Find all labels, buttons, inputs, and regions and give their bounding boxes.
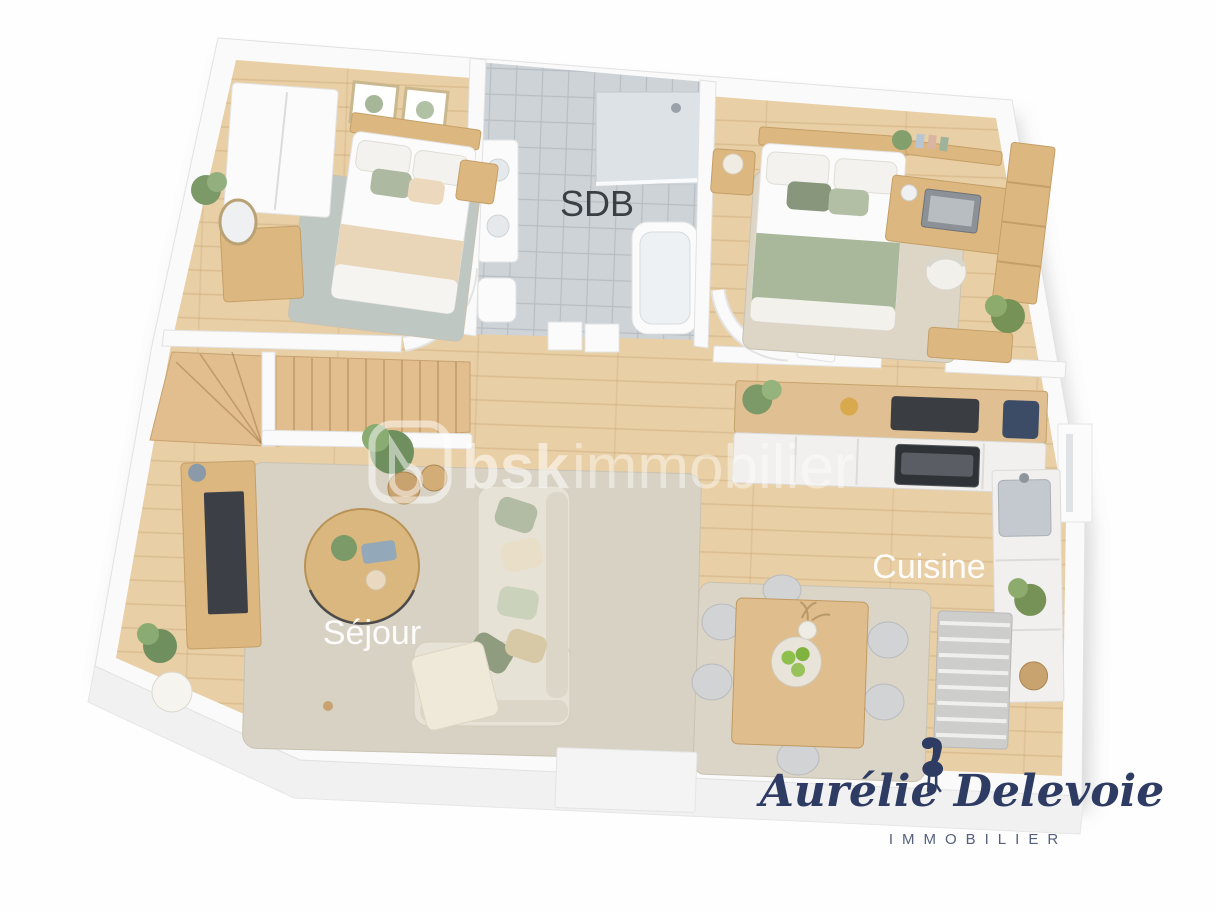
watermark-text-light: immobilier [572, 433, 854, 502]
right-wall-window [1058, 424, 1092, 522]
floorplan-svg: SDB [0, 0, 1216, 912]
plant [137, 623, 159, 645]
table-bowl [366, 570, 386, 590]
bathroom-label: SDB [560, 183, 634, 224]
bathroom-door [585, 324, 619, 352]
tv-console [181, 461, 261, 649]
floorplan-render: SDB [0, 0, 1216, 912]
bathroom: SDB [466, 62, 706, 352]
laptop-screen [928, 195, 975, 226]
agency-subtitle: IMMOBILIER [889, 831, 1067, 848]
plant [985, 295, 1007, 317]
striped-runner [934, 611, 1013, 749]
frame-botanical-art [416, 101, 434, 119]
table-lamp [723, 154, 743, 174]
accent-pillow-sage [369, 168, 412, 199]
shower [596, 92, 700, 184]
window-glass [1066, 434, 1073, 512]
shower-head [671, 103, 681, 113]
runner-base [934, 611, 1013, 749]
entry-step-block [555, 748, 697, 813]
flower-vase [798, 621, 817, 640]
nightstand [455, 160, 498, 205]
sink-basin [487, 215, 509, 237]
oven-window [901, 452, 974, 476]
sofa-back [546, 492, 568, 698]
desk-area [885, 175, 1010, 255]
kitchen-label: Cuisine [872, 548, 985, 586]
frame-botanical-art [365, 95, 383, 113]
dining-chair [868, 622, 908, 658]
bathroom-door [548, 322, 582, 350]
cooktop [890, 396, 979, 433]
table-plant [331, 535, 357, 561]
dining-chair [864, 684, 904, 720]
plant [207, 172, 227, 192]
book [927, 135, 937, 150]
floor-lamp [152, 672, 192, 712]
watermark-text-bold: bsk [462, 433, 569, 502]
mirror [220, 200, 256, 244]
tv-screen [204, 491, 248, 614]
bathtub-basin [640, 232, 690, 324]
toilet [478, 278, 516, 322]
coffee-machine [1002, 400, 1039, 439]
accent-pillow-sage [786, 181, 832, 212]
staircase [150, 352, 472, 449]
book [915, 134, 925, 149]
decor-basket [323, 701, 333, 711]
wicker-basket [1019, 662, 1047, 690]
accent-pillow-sage [828, 188, 870, 217]
shelf-plant [892, 130, 912, 150]
agency-name: Aurélie Delevoie [756, 766, 1165, 817]
accent-pillow-beige [407, 177, 446, 206]
bench [927, 327, 1013, 363]
coffee-table [305, 509, 419, 624]
living-room-label: Séjour [323, 614, 421, 652]
kitchen-sink [998, 480, 1051, 537]
dining-table [731, 598, 868, 749]
book [939, 137, 949, 152]
dining-chair [692, 664, 732, 700]
